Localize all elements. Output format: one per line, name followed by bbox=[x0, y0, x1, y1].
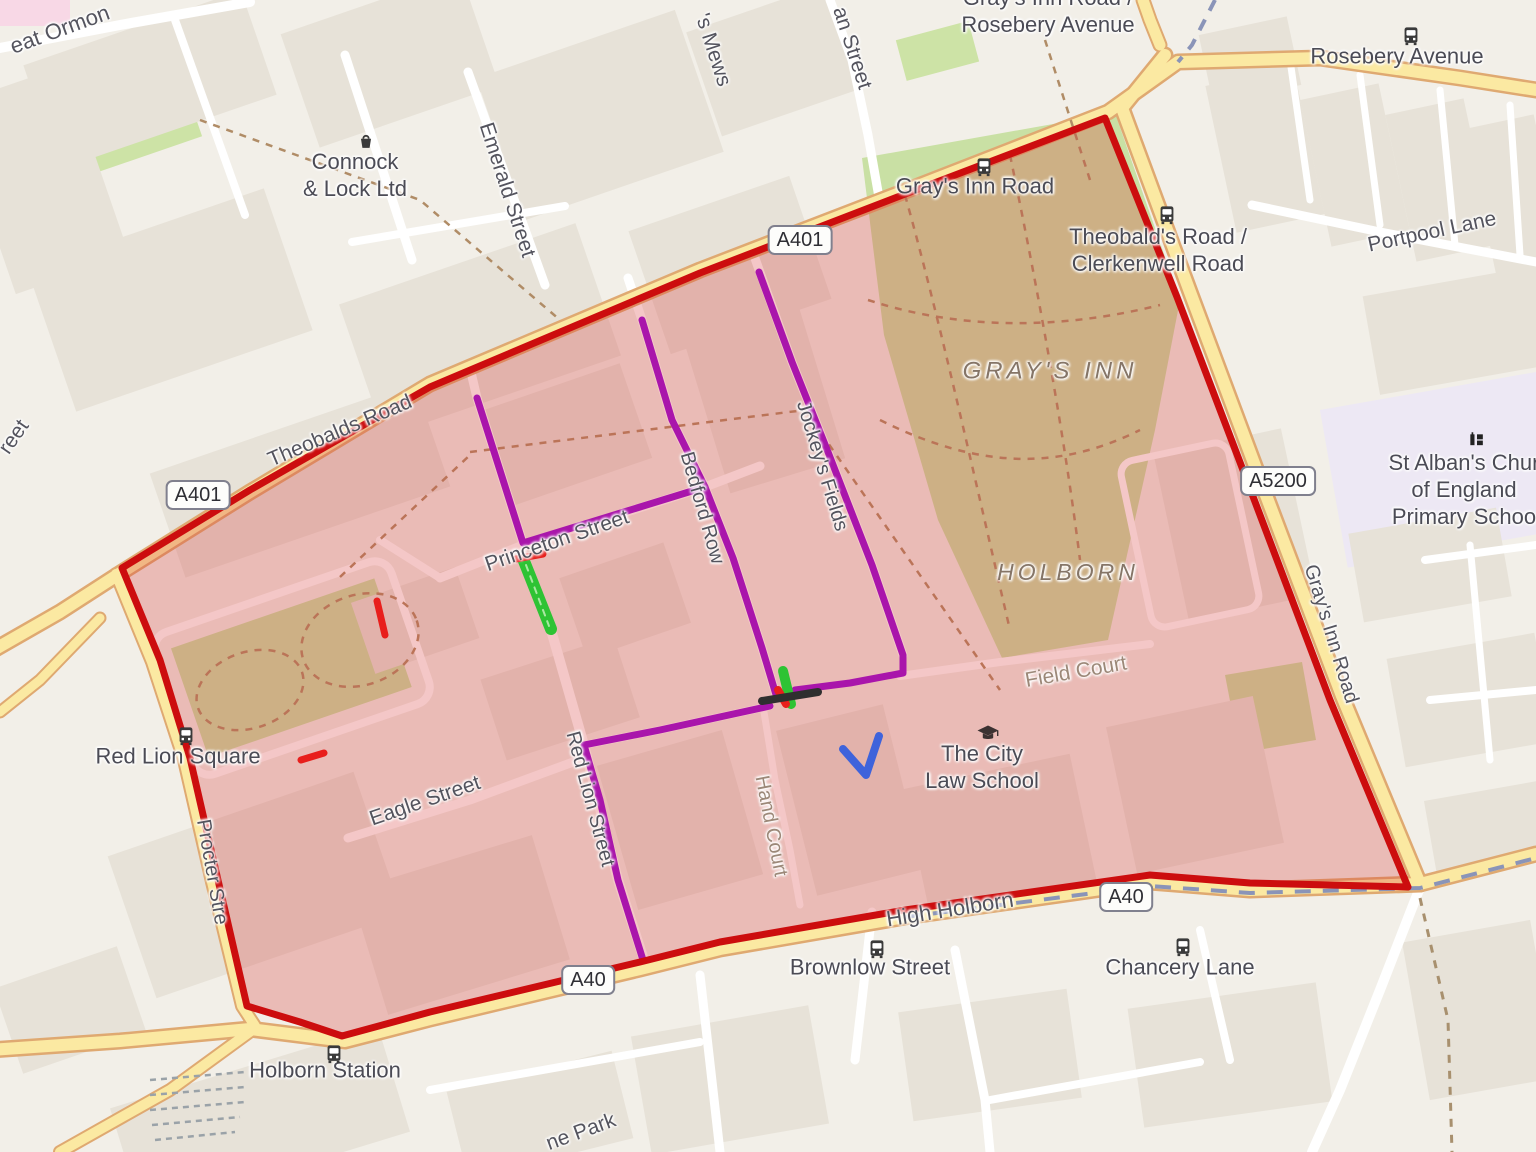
segment-red-princeton bbox=[516, 554, 543, 559]
map-canvas[interactable]: eat OrmonConnock& Lock Ltd's MewsEmerald… bbox=[0, 0, 1536, 1152]
base-map bbox=[0, 0, 1536, 1152]
